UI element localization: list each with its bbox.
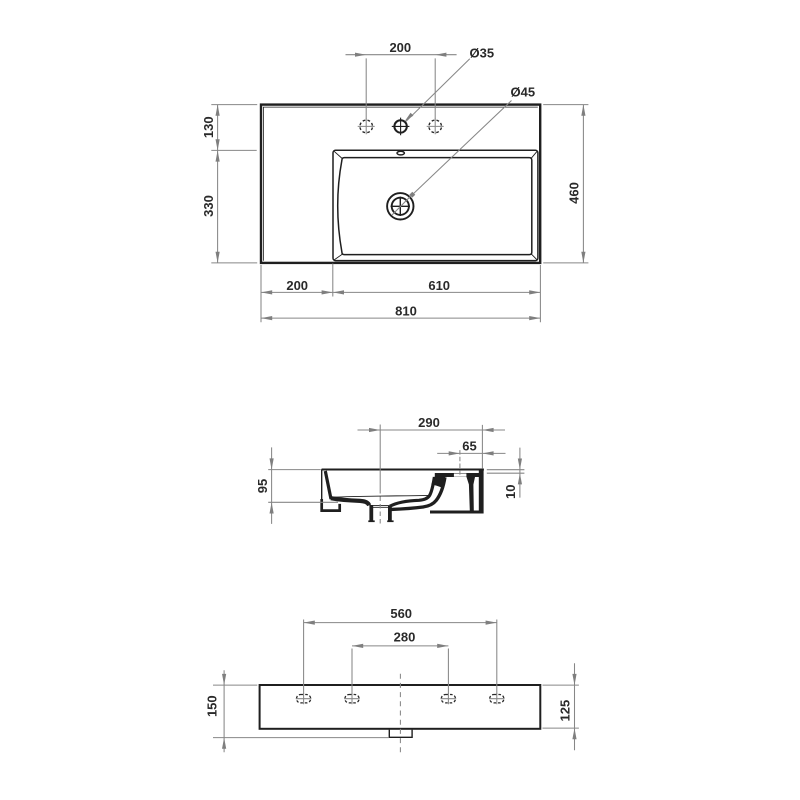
svg-text:460: 460 [567,182,582,204]
svg-text:610: 610 [428,278,450,293]
svg-text:200: 200 [286,278,308,293]
svg-text:10: 10 [503,485,518,499]
svg-text:560: 560 [390,606,412,621]
svg-text:65: 65 [462,438,476,453]
svg-text:290: 290 [418,415,440,430]
svg-text:280: 280 [394,630,416,645]
svg-text:Ø45: Ø45 [511,85,536,100]
svg-text:150: 150 [205,695,220,717]
svg-text:95: 95 [255,479,270,493]
svg-text:810: 810 [395,304,417,319]
svg-text:Ø35: Ø35 [470,46,495,61]
svg-text:200: 200 [389,40,411,55]
svg-text:125: 125 [558,700,573,722]
svg-text:330: 330 [201,195,216,217]
svg-text:130: 130 [201,116,216,138]
